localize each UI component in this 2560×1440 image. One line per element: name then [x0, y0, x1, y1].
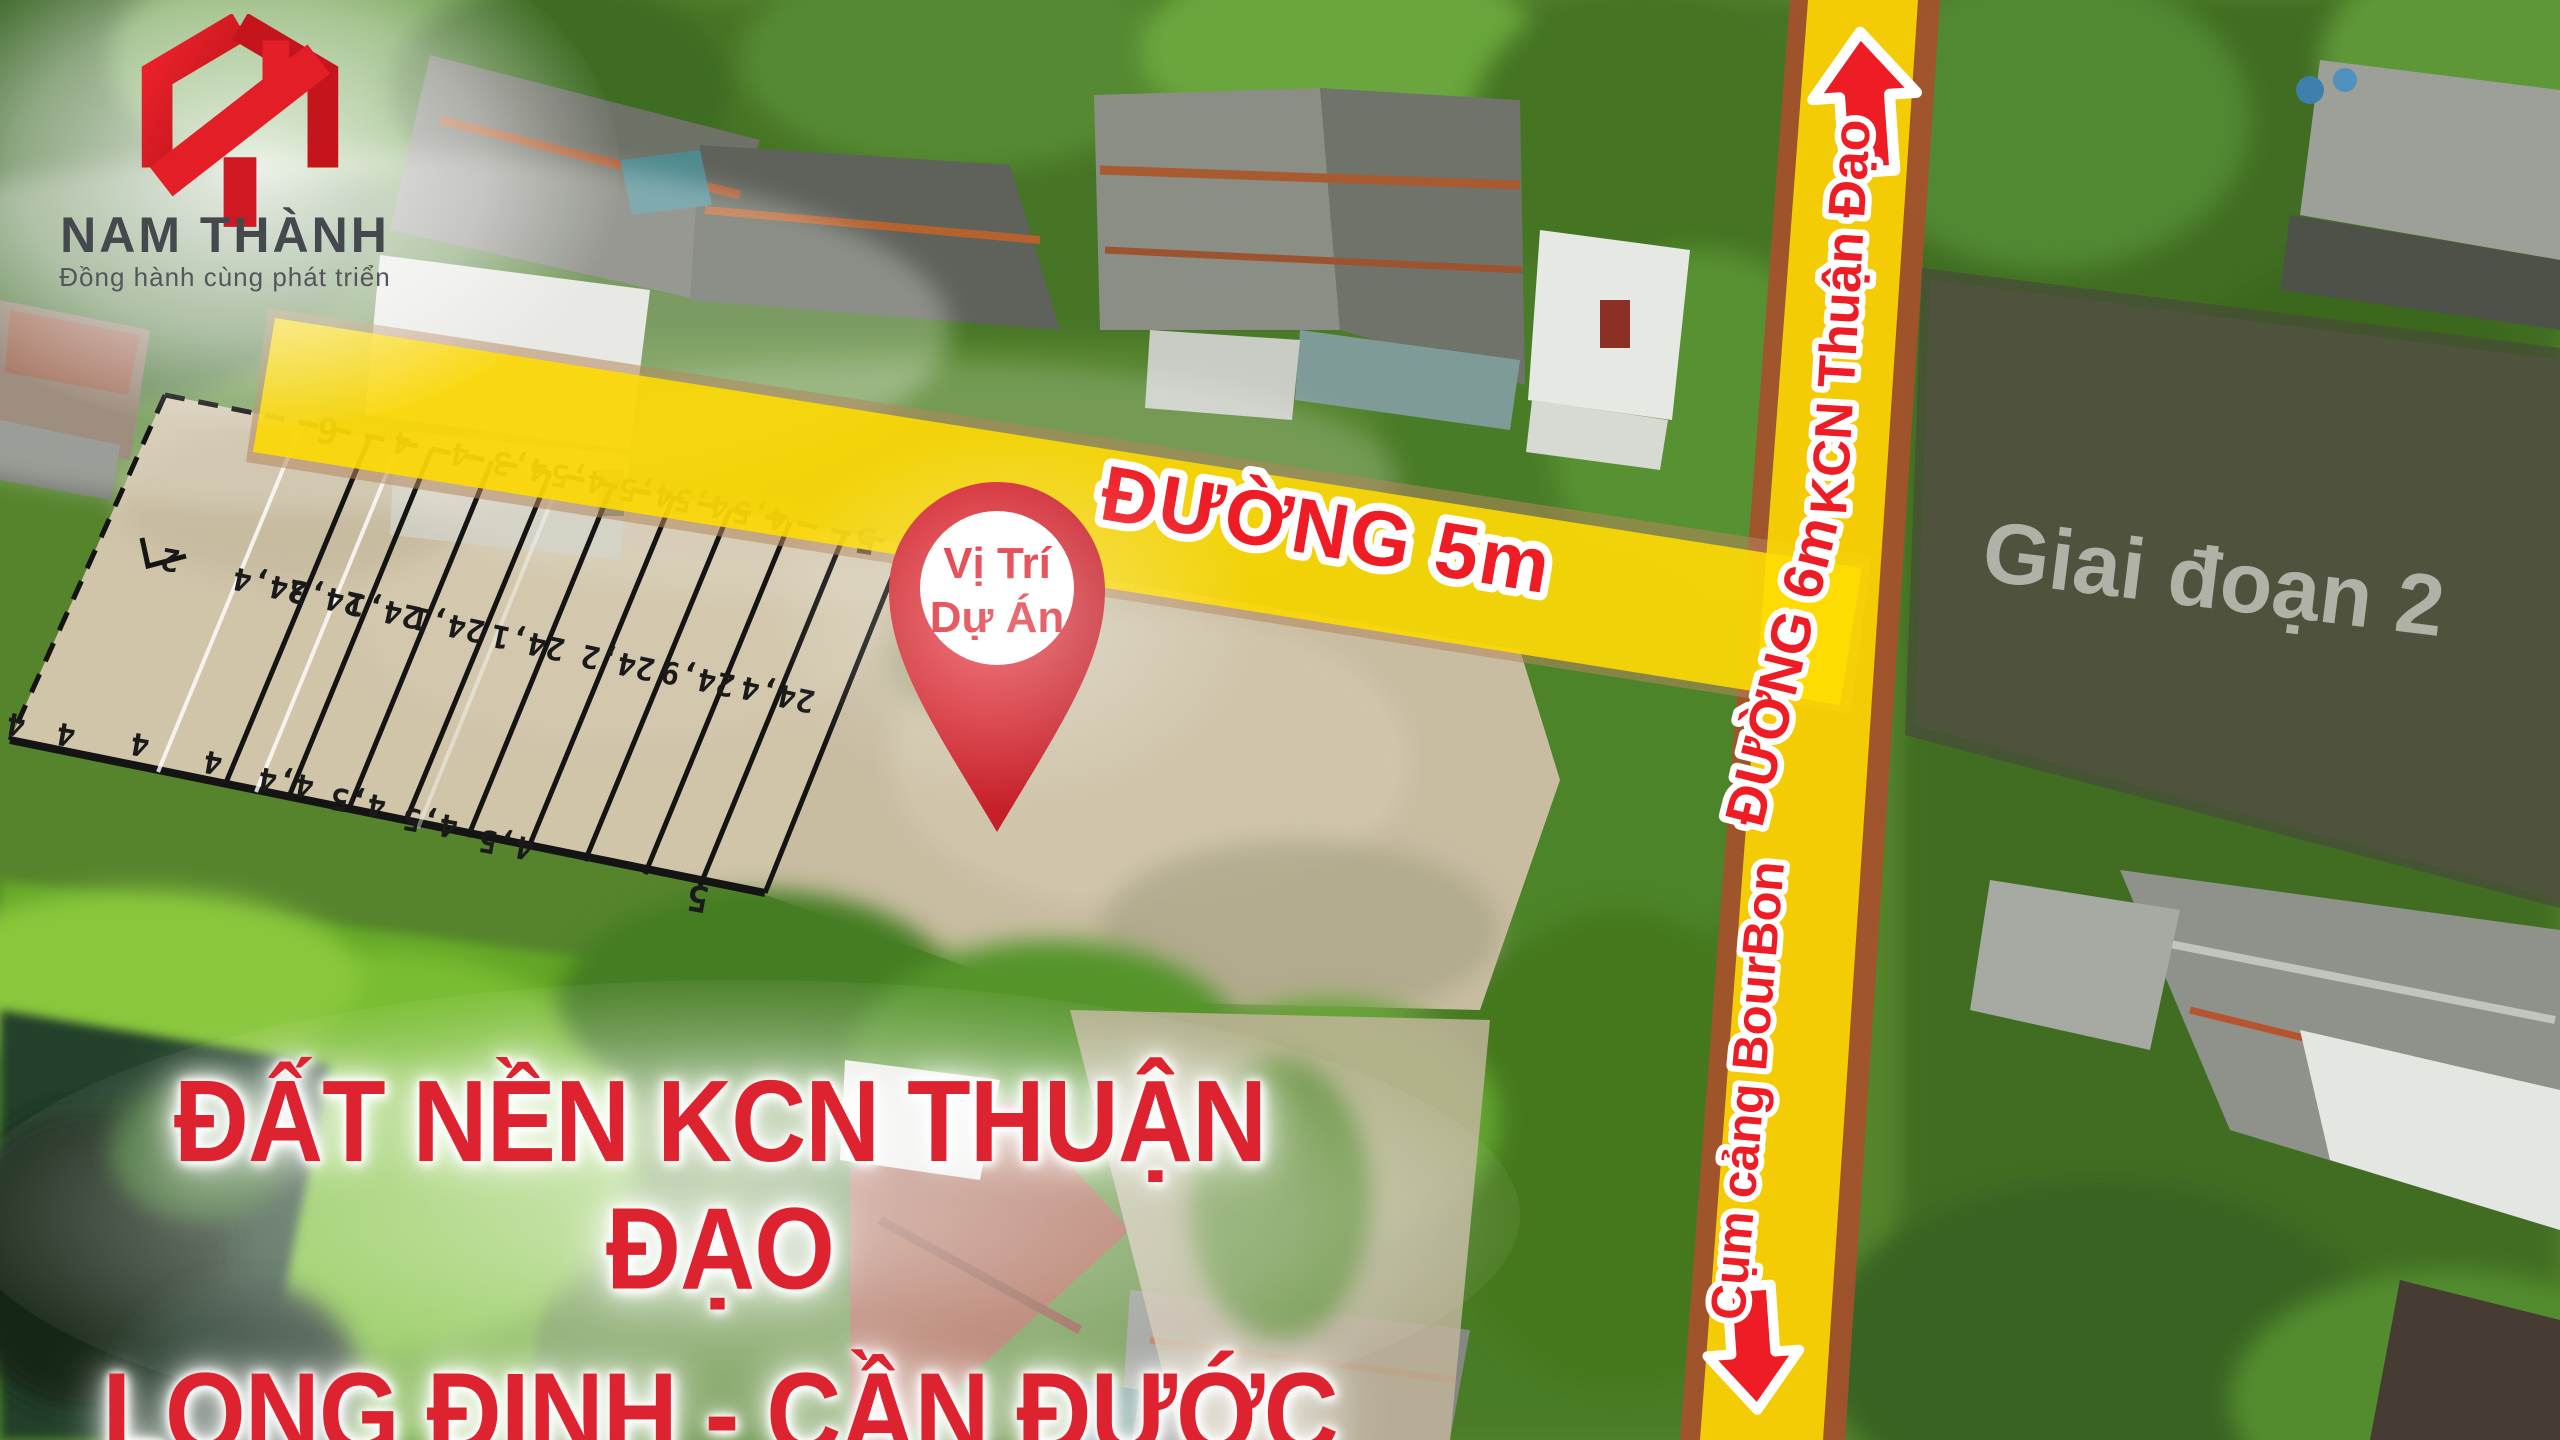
pin-label-line1: Vị Trí [943, 539, 1052, 588]
house-near-road [1526, 230, 1690, 470]
headline-line1: ĐẤT NỀN KCN THUẬN ĐẠO [60, 1058, 1380, 1314]
company-tagline: Đồng hành cùng phát triển [50, 262, 400, 293]
pin-label-line2: Dự Án [930, 592, 1065, 642]
real-estate-promo-graphic: 6 4 4 4,3 4,5 4,5 4,5 4,5 5 24,4 24,3 24… [0, 0, 2560, 1440]
headline-line2: LONG ĐỊNH - CẦN ĐƯỚC [60, 1350, 1380, 1440]
houses-top-right [2280, 60, 2560, 330]
headline: ĐẤT NỀN KCN THUẬN ĐẠO LONG ĐỊNH - CẦN ĐƯ… [60, 1058, 1380, 1440]
company-name: NAM THÀNH [50, 206, 400, 264]
nam-thanh-logo [130, 14, 350, 234]
nt-monogram-icon [130, 14, 350, 234]
